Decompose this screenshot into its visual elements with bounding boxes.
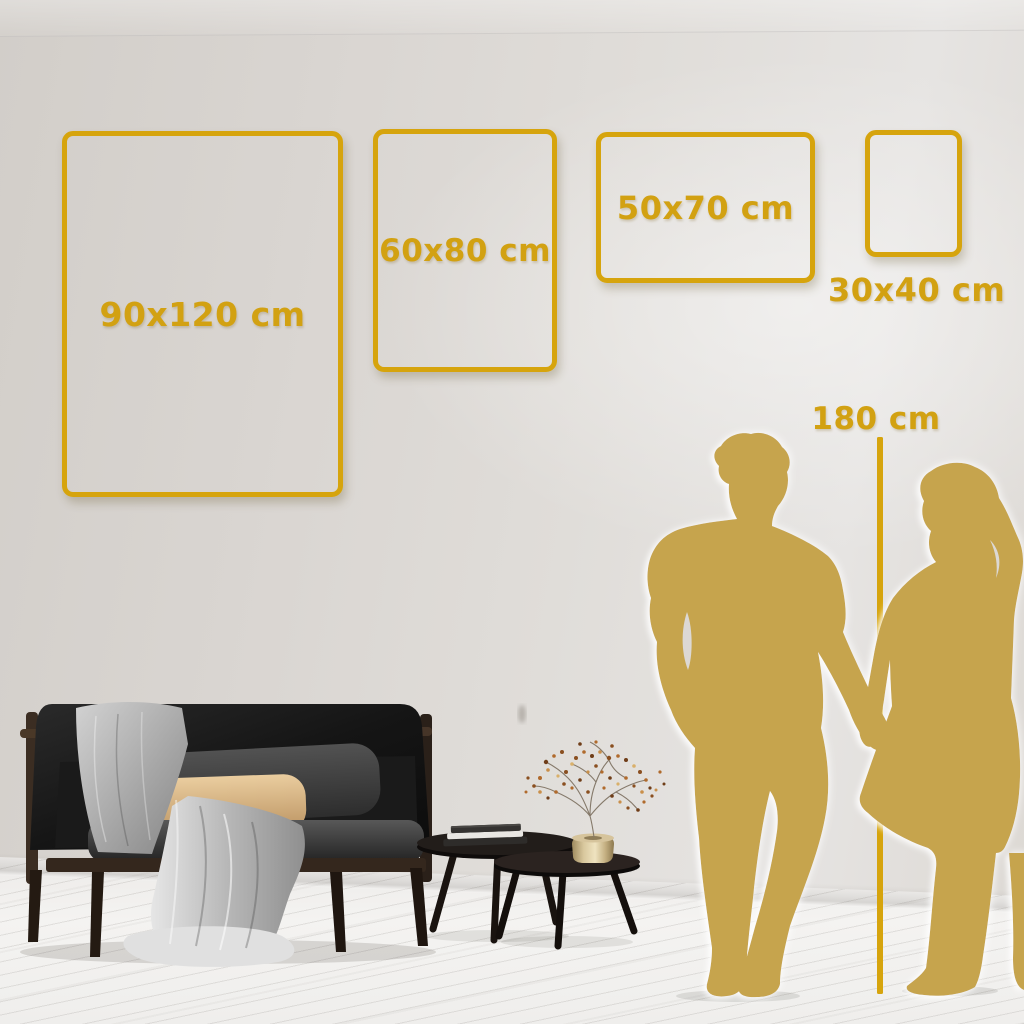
size-frame-60x80: 60x80 cm xyxy=(373,129,557,372)
size-label-50x70: 50x70 cm xyxy=(617,189,794,227)
size-frame-30x40 xyxy=(865,130,962,257)
woman-back-leg xyxy=(1009,853,1024,990)
size-label-30x40: 30x40 cm xyxy=(828,271,998,309)
book-stack xyxy=(443,824,528,847)
brass-vase xyxy=(572,834,614,864)
size-label-60x80: 60x80 cm xyxy=(379,233,551,269)
size-guide-scene: 90x120 cm 60x80 cm 50x70 cm 30x40 cm 180… xyxy=(0,0,1024,1024)
couple-silhouettes xyxy=(647,433,1024,997)
woman-silhouette xyxy=(859,463,1023,996)
size-label-90x120: 90x120 cm xyxy=(99,295,305,334)
size-frame-90x120: 90x120 cm xyxy=(62,131,343,497)
height-reference-label: 180 cm xyxy=(806,401,946,437)
wall-outlet xyxy=(518,705,526,723)
branch-plant xyxy=(525,740,666,837)
size-frame-50x70: 50x70 cm xyxy=(596,132,815,283)
berries xyxy=(525,740,666,811)
man-silhouette xyxy=(647,433,889,997)
